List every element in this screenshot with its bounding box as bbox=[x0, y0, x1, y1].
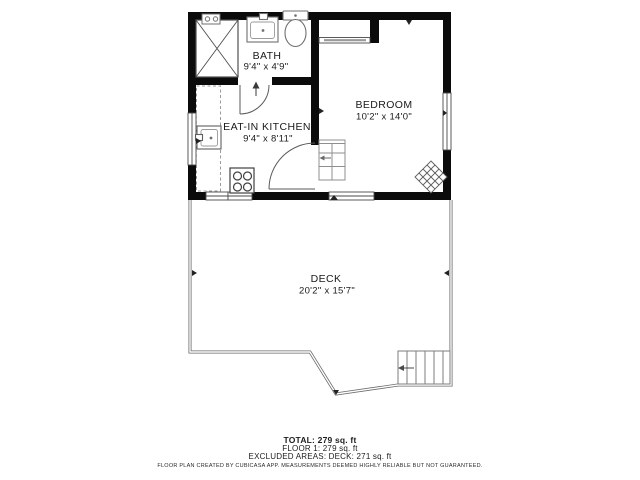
deck-room-label: DECK bbox=[311, 273, 342, 285]
floor-plan-drawing bbox=[0, 0, 640, 480]
kitchen-left-window bbox=[188, 113, 196, 165]
shower bbox=[196, 20, 238, 77]
excluded-area-text: EXCLUDED AREAS: DECK: 271 sq. ft bbox=[249, 452, 392, 461]
floor-furnace-icon bbox=[415, 161, 447, 193]
shower-valve-icon bbox=[202, 14, 220, 24]
deck-room-dims: 20'2" x 15'7" bbox=[299, 286, 355, 297]
bedroom-alcove-window bbox=[319, 38, 370, 44]
stove bbox=[230, 168, 254, 193]
kitchen-room-dims: 9'4" x 8'11" bbox=[243, 134, 293, 145]
kitchen-sink bbox=[196, 126, 222, 149]
floor-plan-page: BATH 9'4" x 4'9" BEDROOM 10'2" x 14'0" E… bbox=[0, 0, 640, 480]
bedroom-room-dims: 10'2" x 14'0" bbox=[356, 112, 412, 123]
kitchen-room-label: EAT-IN KITCHEN bbox=[223, 121, 311, 133]
interior-stairs-direction-arrow-icon bbox=[320, 156, 332, 161]
bedroom-room-label: BEDROOM bbox=[355, 99, 412, 111]
disclaimer-text: FLOOR PLAN CREATED BY CUBICASA APP. MEAS… bbox=[157, 463, 482, 469]
bedroom-door bbox=[269, 143, 315, 189]
bedroom-right-window bbox=[443, 93, 451, 150]
deck-stairs-direction-arrow-icon bbox=[398, 365, 414, 371]
bath-door bbox=[240, 85, 269, 114]
bathroom-sink bbox=[247, 14, 278, 43]
bath-room-label: BATH bbox=[253, 50, 282, 62]
bath-door-entry-arrow-icon bbox=[253, 82, 260, 97]
deck-outline bbox=[190, 200, 451, 394]
toilet bbox=[283, 11, 308, 47]
bath-room-dims: 9'4" x 4'9" bbox=[244, 62, 289, 73]
interior-stairs bbox=[319, 140, 345, 180]
